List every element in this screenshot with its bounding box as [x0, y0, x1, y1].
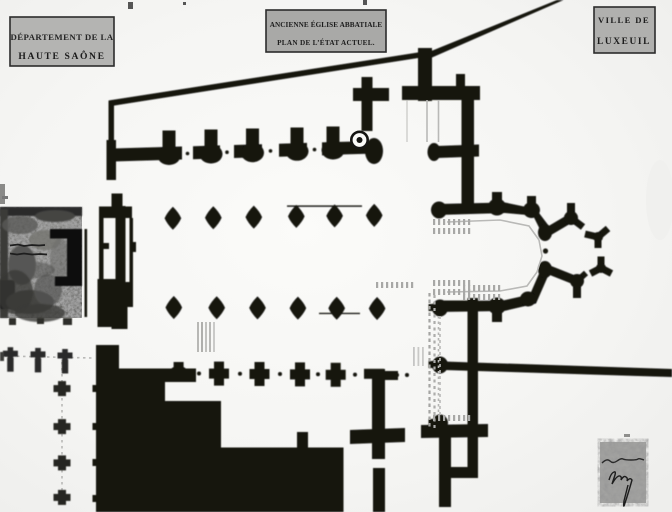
svg-text:PLAN DE L’ÉTAT ACTUEL.: PLAN DE L’ÉTAT ACTUEL. [277, 37, 375, 47]
svg-text:VILLE DE: VILLE DE [598, 15, 650, 25]
svg-text:HAUTE SAÔNE: HAUTE SAÔNE [18, 49, 105, 62]
svg-text:LUXEUIL: LUXEUIL [597, 37, 651, 47]
svg-text:ANCIENNE ÉGLISE ABBATIALE: ANCIENNE ÉGLISE ABBATIALE [270, 19, 383, 29]
svg-text:DÉPARTEMENT DE LA: DÉPARTEMENT DE LA [11, 32, 114, 42]
